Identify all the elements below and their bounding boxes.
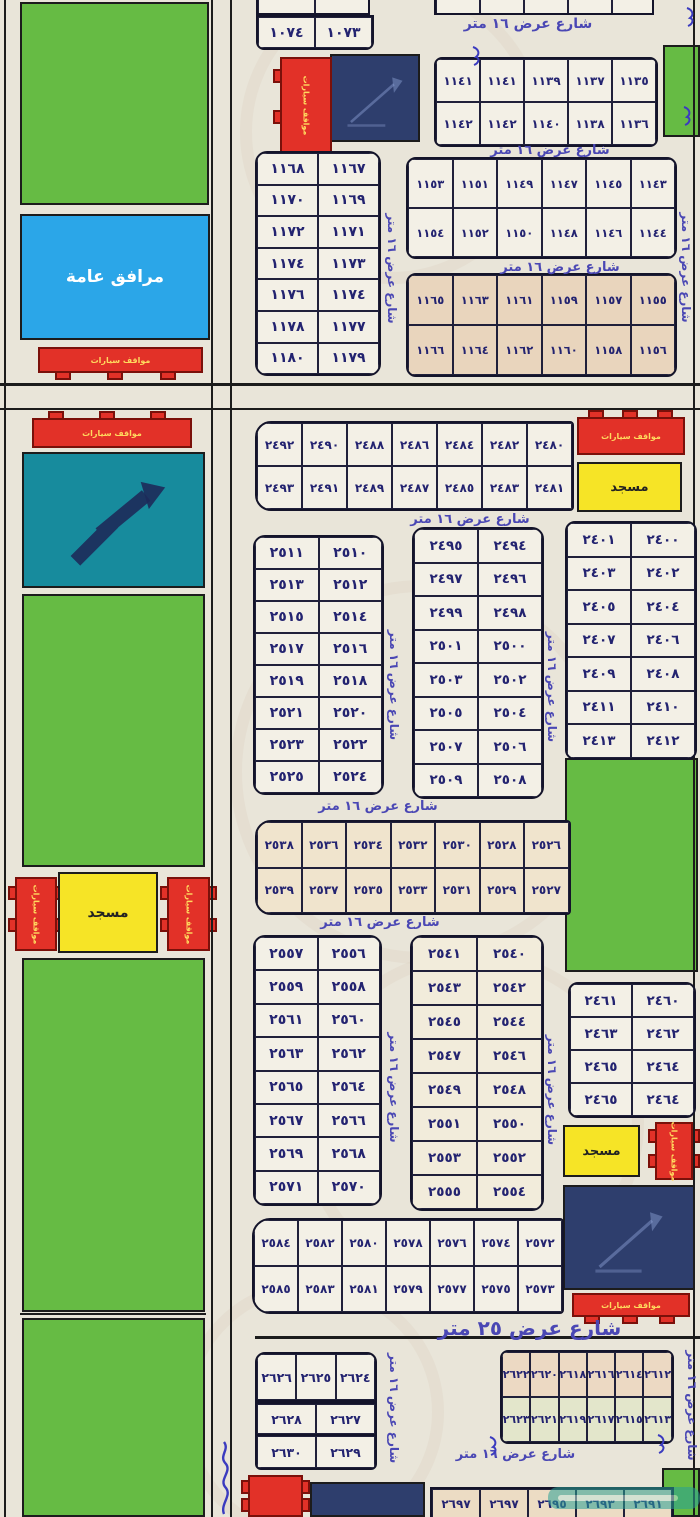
plot-cell: ٢٤٠٤ <box>631 590 695 624</box>
parking-strip: مواقف سيارات <box>32 418 192 448</box>
plot-cell: ٢٥٠٨ <box>478 764 542 798</box>
plot-cell: ٢٥٨١ <box>342 1266 386 1312</box>
plot-cell: ٢٥١٦ <box>319 633 383 665</box>
plot-cell: ٢٤٠٣ <box>567 557 631 591</box>
plot-cell: ١١٦٣ <box>453 275 498 325</box>
plot-cell: ٢٦٢٧ <box>316 1404 375 1434</box>
arrow-icon <box>565 1185 693 1290</box>
street-label-vertical: شارع عرض ١٦ متر <box>544 990 560 1190</box>
plot-cell: ١١٥٨ <box>586 325 631 375</box>
street-label: شارع عرض ١٦ متر <box>380 512 560 527</box>
plot-cell: ٢٥٣٥ <box>346 868 391 914</box>
plot-cell: ٢٥٠٠ <box>478 630 542 664</box>
plot-cell: ١١٦١ <box>497 275 542 325</box>
plot-cell: ٢٤٠٠ <box>631 523 695 557</box>
street-label: شارع عرض ١٦ متر <box>288 799 468 814</box>
park-block <box>565 758 698 972</box>
plot-cell: ١١٧٣ <box>318 248 379 280</box>
plot-cell: ٢٥٨٤ <box>254 1220 298 1266</box>
plot-cell: ٢٦٢٦ <box>257 1354 296 1400</box>
plot-table-cut <box>434 0 654 15</box>
plot-cell: ٢٤٩٠ <box>302 423 347 466</box>
plot-cell: ٢٥٤٧ <box>412 1039 477 1073</box>
plot-cell: ٢٥٧٧ <box>430 1266 474 1312</box>
plot-cell: ٢٥٤٥ <box>412 1005 477 1039</box>
pen-mark <box>470 45 484 67</box>
plot-cell: ٢٤١٢ <box>631 724 695 758</box>
plot-cell: ٢٥٣٩ <box>257 868 302 914</box>
plot-cell: ٢٥١٤ <box>319 601 383 633</box>
parking-strip-label: مواقف سيارات <box>91 356 151 365</box>
plot-cell: ٢٥٨٢ <box>298 1220 342 1266</box>
plot-cell: ٢٦٢١ <box>530 1397 558 1442</box>
plot-cell: ١١٧٤ <box>318 279 379 311</box>
plot-cell: ١١٦٦ <box>408 325 453 375</box>
plot-cell: ٢٥٥١ <box>412 1107 477 1141</box>
reserved-block <box>310 1482 425 1517</box>
street-label: شارع عرض ١٦ متر <box>423 1447 608 1462</box>
plot-cell: ١١٧٢ <box>257 216 318 248</box>
plot-cell: ٢٤٦٢ <box>632 1017 694 1050</box>
parking-strip-label: مواقف سيارات <box>32 884 41 944</box>
plot-cell: ٢٥٧٦ <box>430 1220 474 1266</box>
plot-cell: ١١٤٦ <box>586 208 631 257</box>
plot-cell: ١١٣٩ <box>524 59 568 102</box>
plot-cell: ٢٦١٧ <box>587 1397 615 1442</box>
plot-cell: ٢٦٢٢ <box>502 1352 530 1397</box>
plot-cell: ٢٤٨٣ <box>482 466 527 509</box>
plot-cell: ٢٤١٣ <box>567 724 631 758</box>
reserved-block <box>563 1185 695 1290</box>
mosque-block-label: مسجد <box>610 480 648 495</box>
plot-cell: ٢٥٠٩ <box>414 764 478 798</box>
plot-cell: ٢٤٠٢ <box>631 557 695 591</box>
plot-cell: ٢٥٨٣ <box>298 1266 342 1312</box>
plot-cell: ٢٤٦٥ <box>570 1050 632 1083</box>
street-label: شارع عرض ١٦ متر <box>290 915 470 930</box>
plot-cell: ٢٥٠٧ <box>414 730 478 764</box>
plot-cell: ١١٣٨ <box>568 102 612 145</box>
plot-table-2627: ٢٦٢٨٢٦٢٧ <box>255 1402 377 1436</box>
plot-cell: ١١٤٧ <box>542 159 587 208</box>
mosque-block: مسجد <box>563 1125 640 1177</box>
parking-strip-label: مواقف سيارات <box>302 75 311 135</box>
street-border-line <box>0 408 700 410</box>
plot-cell: ٢٤٠٨ <box>631 657 695 691</box>
plot-cell: ٢٥٣٢ <box>391 822 436 868</box>
plot-cell: ٢٥١٣ <box>255 569 319 601</box>
plot-cell: ٢٥٧٢ <box>518 1220 562 1266</box>
plot-cell: ١١٧١ <box>318 216 379 248</box>
street-label-vertical: شارع عرض ١٦ متر <box>386 1353 402 1453</box>
plot-cell: ١١٥٩ <box>542 275 587 325</box>
plot-cell: ٢٥٥٧ <box>255 937 318 970</box>
plot-cell: ٢٦٢٣ <box>502 1397 530 1442</box>
plot-cell: ٢٥٥٩ <box>255 970 318 1003</box>
plot-cell: ٢٥٧٩ <box>386 1266 430 1312</box>
plot-cell: ١١٥٦ <box>631 325 676 375</box>
plot-table-1167: ١١٦٨١١٦٧١١٧٠١١٦٩١١٧٢١١٧١١١٧٤١١٧٣١١٧٦١١٧٤… <box>255 151 381 376</box>
plot-cell: ٢٦٩٧ <box>432 1489 480 1517</box>
parking-strip-label: مواقف سيارات <box>82 429 142 438</box>
plot-cell: ٢٥٣٤ <box>346 822 391 868</box>
plot-cell: ٢٤٦٣ <box>570 1017 632 1050</box>
plot-cell: ٢٥٦٦ <box>318 1104 381 1137</box>
utility-block <box>22 452 205 588</box>
plot-cell: ٢٦٢٨ <box>257 1404 316 1434</box>
plot-cell: ٢٤٦٥ <box>570 1083 632 1116</box>
plot-cell: ٢٤٦١ <box>570 984 632 1017</box>
plot-cell: ١١٤٤ <box>631 208 676 257</box>
plot-table-cut <box>256 0 370 15</box>
public-facilities-block-label: مرافق عامة <box>66 267 164 287</box>
plot-table-2624: ٢٦٢٦٢٦٢٥٢٦٢٤ <box>255 1352 377 1402</box>
plot-cell: ٢٥٢٧ <box>524 868 569 914</box>
park-block <box>20 2 209 205</box>
plot-cell: ٢٥٢٦ <box>524 822 569 868</box>
park-block <box>22 594 205 867</box>
plot-cell: ٢٥٥٣ <box>412 1141 477 1175</box>
plot-cell: ٢٥١٥ <box>255 601 319 633</box>
plot-cell: ٢٥١٢ <box>319 569 383 601</box>
plot-cell: ٢٥٣١ <box>435 868 480 914</box>
plot-cell: ١١٧٦ <box>257 279 318 311</box>
plot-cell: ٢٤٨٦ <box>392 423 437 466</box>
plot-cell: ٢٥٢١ <box>255 697 319 729</box>
plot-cell: ٢٦١٤ <box>615 1352 643 1397</box>
plot-cell <box>480 0 524 15</box>
plot-cell: ٢٦٢٤ <box>336 1354 375 1400</box>
plot-cell: ٢٥٣٧ <box>302 868 347 914</box>
plot-cell: ٢٥٢٠ <box>319 697 383 729</box>
plot-cell: ١١٥٠ <box>497 208 542 257</box>
plot-cell: ٢٦١٢ <box>643 1352 671 1397</box>
plot-table-2510: ٢٥١١٢٥١٠٢٥١٣٢٥١٢٢٥١٥٢٥١٤٢٥١٧٢٥١٦٢٥١٩٢٥١٨… <box>253 535 384 795</box>
pen-mark <box>681 105 695 127</box>
plot-cell: ٢٥٨٠ <box>342 1220 386 1266</box>
plot-cell: ٢٥٨٥ <box>254 1266 298 1312</box>
plot-cell: ١٠٧٣ <box>315 17 372 48</box>
plot-cell: ٢٥٥٦ <box>318 937 381 970</box>
plot-cell: ١١٤٩ <box>497 159 542 208</box>
mosque-block: مسجد <box>577 462 682 512</box>
plot-cell: ٢٥٠٦ <box>478 730 542 764</box>
plot-cell: ١١٤٠ <box>524 102 568 145</box>
street-label-vertical: شارع عرض ١٦ متر <box>684 1348 700 1463</box>
plot-cell: ٢٤٨٢ <box>482 423 527 466</box>
plot-cell: ٢٤٨١ <box>527 466 572 509</box>
plot-cell: ٢٥٦٢ <box>318 1037 381 1070</box>
plot-cell: ١١٥٥ <box>631 275 676 325</box>
plot-cell: ٢٤٩٢ <box>257 423 302 466</box>
plot-cell: ٢٥٦٤ <box>318 1071 381 1104</box>
plot-cell: ٢٥٤١ <box>412 937 477 971</box>
handwritten-street-note <box>214 1440 234 1516</box>
plot-cell: ٢٥٤٨ <box>477 1073 542 1107</box>
plot-cell: ٢٥٥٨ <box>318 970 381 1003</box>
plot-cell: ٢٥٧٠ <box>318 1171 381 1204</box>
plot-cell: ٢٤٩٤ <box>478 529 542 563</box>
plot-cell: ٢٥٣٠ <box>435 822 480 868</box>
plot-cell: ٢٤٩٦ <box>478 563 542 597</box>
plot-cell <box>524 0 568 15</box>
plot-cell: ١١٣٦ <box>612 102 656 145</box>
plot-cell: ٢٤٨٨ <box>347 423 392 466</box>
mosque-block-label: مسجد <box>582 1144 620 1159</box>
plot-table-2629: ٢٦٣٠٢٦٢٩ <box>255 1434 377 1470</box>
plot-cell: ٢٤٠١ <box>567 523 631 557</box>
parking-strip <box>248 1475 303 1517</box>
plot-cell: ١١٦٧ <box>318 153 379 185</box>
plot-cell: ٢٦٩٧ <box>480 1489 528 1517</box>
plot-cell: ٢٦٢٠ <box>530 1352 558 1397</box>
plot-cell: ٢٥١٧ <box>255 633 319 665</box>
plot-cell: ٢٥٤٩ <box>412 1073 477 1107</box>
mosque-block-label: مسجد <box>87 905 128 921</box>
plot-cell: ٢٥١٨ <box>319 665 383 697</box>
plot-cell: ٢٥٢٢ <box>319 729 383 761</box>
parking-strip: مواقف سيارات <box>572 1293 690 1317</box>
plot-cell: ٢٤١٠ <box>631 691 695 725</box>
plot-cell: ٢٥٥٠ <box>477 1107 542 1141</box>
plot-map-canvas: مرافق عامةمسجدمسجدمسجدمواقف سياراتمواقف … <box>0 0 700 1517</box>
plot-cell: ٢٥٠٣ <box>414 663 478 697</box>
parking-strip-label: مواقف سيارات <box>184 884 193 944</box>
plot-cell: ١١٦٤ <box>453 325 498 375</box>
plot-cell: ٢٤١١ <box>567 691 631 725</box>
plot-cell: ١١٥١ <box>453 159 498 208</box>
parking-strip: مواقف سيارات <box>280 57 332 153</box>
plot-cell: ١١٤٨ <box>542 208 587 257</box>
mosque-block: مسجد <box>58 872 158 953</box>
plot-cell: ٢٦٢٥ <box>296 1354 335 1400</box>
parking-strip: مواقف سيارات <box>577 417 685 455</box>
plot-cell: ٢٦١٨ <box>559 1352 587 1397</box>
plot-cell: ٢٤٨٠ <box>527 423 572 466</box>
street-label: شارع عرض ٢٥ متر <box>407 1316 652 1340</box>
parking-strip: مواقف سيارات <box>15 877 57 951</box>
plot-table-2460: ٢٤٦١٢٤٦٠٢٤٦٣٢٤٦٢٢٤٦٥٢٤٦٤٢٤٦٥٢٤٦٤ <box>568 982 696 1118</box>
plot-cell: ٢٤٩١ <box>302 466 347 509</box>
street-label: شارع عرض ١٦ متر <box>450 143 650 158</box>
plot-cell: ٢٥١٩ <box>255 665 319 697</box>
plot-cell: ٢٤٦٠ <box>632 984 694 1017</box>
parking-strip: مواقف سيارات <box>167 877 210 951</box>
plot-cell: ٢٥٧٥ <box>474 1266 518 1312</box>
plot-cell: ٢٤٦٤ <box>632 1050 694 1083</box>
plot-cell: ٢٤٨٥ <box>437 466 482 509</box>
plot-cell: ١١٥٤ <box>408 208 453 257</box>
park-block <box>22 1318 205 1517</box>
plot-cell: ٢٥٠١ <box>414 630 478 664</box>
plot-cell: ٢٤٩٣ <box>257 466 302 509</box>
plot-cell: ٢٤٩٩ <box>414 596 478 630</box>
plot-cell <box>258 0 315 15</box>
plot-cell: ٢٥٠٥ <box>414 697 478 731</box>
plot-cell: ٢٤٨٧ <box>392 466 437 509</box>
plot-table-2480: ٢٤٩٢٢٤٩٠٢٤٨٨٢٤٨٦٢٤٨٤٢٤٨٢٢٤٨٠٢٤٩٣٢٤٩١٢٤٨٩… <box>255 421 574 511</box>
plot-cell: ٢٥٦١ <box>255 1004 318 1037</box>
plot-cell: ٢٥٢٣ <box>255 729 319 761</box>
plot-cell: ٢٥٧٣ <box>518 1266 562 1312</box>
bolt-icon <box>24 452 203 588</box>
plot-cell: ٢٤٦٤ <box>632 1083 694 1116</box>
plot-cell: ٢٤٠٩ <box>567 657 631 691</box>
street-border-line <box>4 0 6 1517</box>
plot-cell: ٢٥٤٢ <box>477 971 542 1005</box>
plot-cell: ١١٤١ <box>480 59 524 102</box>
watermark-logo <box>548 1487 700 1509</box>
plot-cell: ١١٥٧ <box>586 275 631 325</box>
plot-cell: ٢٥٦٩ <box>255 1137 318 1170</box>
plot-cell: ١١٦٢ <box>497 325 542 375</box>
street-border-line <box>0 383 700 386</box>
plot-table-1143: ١١٥٣١١٥١١١٤٩١١٤٧١١٤٥١١٤٣١١٥٤١١٥٢١١٥٠١١٤٨… <box>406 157 677 259</box>
arrow-icon <box>332 54 418 142</box>
plot-table-1155: ١١٦٥١١٦٣١١٦١١١٥٩١١٥٧١١٥٥١١٦٦١١٦٤١١٦٢١١٦٠… <box>406 273 677 377</box>
plot-cell: ٢٥٠٢ <box>478 663 542 697</box>
plot-cell: ٢٥٧١ <box>255 1171 318 1204</box>
pen-mark <box>487 1435 501 1457</box>
plot-table-2572: ٢٥٨٤٢٥٨٢٢٥٨٠٢٥٧٨٢٥٧٦٢٥٧٤٢٥٧٢٢٥٨٥٢٥٨٣٢٥٨١… <box>252 1218 564 1314</box>
plot-cell: ٢٥٣٣ <box>391 868 436 914</box>
reserved-block <box>330 54 420 142</box>
plot-table-2400: ٢٤٠١٢٤٠٠٢٤٠٣٢٤٠٢٢٤٠٥٢٤٠٤٢٤٠٧٢٤٠٦٢٤٠٩٢٤٠٨… <box>565 521 697 760</box>
plot-cell: ٢٤٩٥ <box>414 529 478 563</box>
street-border-line <box>230 0 232 1517</box>
plot-cell: ١١٦٨ <box>257 153 318 185</box>
plot-cell <box>436 0 480 15</box>
plot-table-2556: ٢٥٥٧٢٥٥٦٢٥٥٩٢٥٥٨٢٥٦١٢٥٦٠٢٥٦٣٢٥٦٢٢٥٦٥٢٥٦٤… <box>253 935 382 1206</box>
plot-table-2612: ٢٦٢٢٢٦٢٠٢٦١٨٢٦١٦٢٦١٤٢٦١٢٢٦٢٣٢٦٢١٢٦١٩٢٦١٧… <box>500 1350 674 1444</box>
plot-table-2526: ٢٥٣٨٢٥٣٦٢٥٣٤٢٥٣٢٢٥٣٠٢٥٢٨٢٥٢٦٢٥٣٩٢٥٣٧٢٥٣٥… <box>255 820 571 915</box>
street-label: شارع عرض ١٦ متر <box>433 16 623 32</box>
plot-cell: ١١٧٠ <box>257 185 318 217</box>
street-label-vertical: شارع عرض ١٦ متر <box>544 587 560 787</box>
plot-cell <box>612 0 654 15</box>
street-label-vertical: شارع عرض ١٦ متر <box>384 172 400 365</box>
plot-cell: ٢٥٤٦ <box>477 1039 542 1073</box>
street-border-line <box>211 0 213 1517</box>
plot-cell: ٢٥٦٥ <box>255 1071 318 1104</box>
pen-mark <box>684 6 698 28</box>
plot-cell: ٢٥٢٩ <box>480 868 525 914</box>
plot-cell: ٢٤٨٤ <box>437 423 482 466</box>
plot-cell: ١١٧٩ <box>318 343 379 375</box>
public-facilities-block: مرافق عامة <box>20 214 210 340</box>
plot-cell: ٢٥٦٧ <box>255 1104 318 1137</box>
plot-cell: ٢٦٣٠ <box>257 1436 316 1468</box>
plot-cell: ٢٥٦٨ <box>318 1137 381 1170</box>
plot-cell: ٢٥٧٨ <box>386 1220 430 1266</box>
plot-cell: ٢٥٥٤ <box>477 1175 542 1209</box>
plot-cell: ١١٤٥ <box>586 159 631 208</box>
plot-cell: ١١٧٨ <box>257 311 318 343</box>
plot-cell <box>315 0 370 15</box>
plot-cell: ٢٥٣٨ <box>257 822 302 868</box>
pen-mark <box>655 1433 669 1455</box>
plot-cell: ٢٦١٦ <box>587 1352 615 1397</box>
plot-cell: ٢٤٠٥ <box>567 590 631 624</box>
plot-cell: ١١٣٧ <box>568 59 612 102</box>
plot-cell: ٢٥٢٨ <box>480 822 525 868</box>
park-block <box>22 958 205 1312</box>
plot-table-2540: ٢٥٤١٢٥٤٠٢٥٤٣٢٥٤٢٢٥٤٥٢٥٤٤٢٥٤٧٢٥٤٦٢٥٤٩٢٥٤٨… <box>410 935 544 1211</box>
plot-cell: ١١٨٠ <box>257 343 318 375</box>
street-label-vertical: شارع عرض ١٦ متر <box>386 590 402 780</box>
plot-cell: ٢٥٤٣ <box>412 971 477 1005</box>
plot-cell: ٢٤٩٨ <box>478 596 542 630</box>
plot-table-2494: ٢٤٩٥٢٤٩٤٢٤٩٧٢٤٩٦٢٤٩٩٢٤٩٨٢٥٠١٢٥٠٠٢٥٠٣٢٥٠٢… <box>412 527 544 799</box>
plot-cell: ١١٦٠ <box>542 325 587 375</box>
plot-cell: ٢٥٠٤ <box>478 697 542 731</box>
parking-strip-label: مواقف سيارات <box>601 1301 661 1310</box>
plot-cell: ١١٣٥ <box>612 59 656 102</box>
plot-cell: ٢٤٠٦ <box>631 624 695 658</box>
parking-strip: مواقف سيارات <box>38 347 203 373</box>
parking-strip: مواقف سيارات <box>655 1122 693 1180</box>
plot-cell: ١١٤٣ <box>631 159 676 208</box>
plot-cell: ٢٤٩٧ <box>414 563 478 597</box>
plot-table-1135: ١١٤١١١٤١١١٣٩١١٣٧١١٣٥١١٤٢١١٤٢١١٤٠١١٣٨١١٣٦ <box>434 57 658 147</box>
plot-cell: ٢٥١١ <box>255 537 319 569</box>
plot-cell: ١١٥٣ <box>408 159 453 208</box>
plot-cell: ٢٥٢٥ <box>255 761 319 793</box>
plot-cell: ١٠٧٤ <box>258 17 315 48</box>
plot-cell: ٢٥٥٢ <box>477 1141 542 1175</box>
plot-cell: ١١٧٧ <box>318 311 379 343</box>
plot-cell: ٢٦١٥ <box>615 1397 643 1442</box>
plot-cell: ٢٥٣٦ <box>302 822 347 868</box>
plot-cell: ١١٤٢ <box>480 102 524 145</box>
plot-cell: ٢٥١٠ <box>319 537 383 569</box>
watermark-logo-stripe <box>558 1495 678 1501</box>
plot-cell: ١١٦٩ <box>318 185 379 217</box>
parking-strip-label: مواقف سيارات <box>601 432 661 441</box>
plot-cell: ٢٥٧٤ <box>474 1220 518 1266</box>
street-border-line <box>20 1313 206 1315</box>
plot-cell: ١١٤٢ <box>436 102 480 145</box>
street-label: شارع عرض ١٦ متر <box>470 260 650 275</box>
plot-cell: ٢٥٢٤ <box>319 761 383 793</box>
plot-cell: ٢٤٠٧ <box>567 624 631 658</box>
plot-cell: ٢٥٦٠ <box>318 1004 381 1037</box>
plot-cell: ١١٦٥ <box>408 275 453 325</box>
plot-cell: ٢٥٤٠ <box>477 937 542 971</box>
plot-cell: ٢٦٢٩ <box>316 1436 375 1468</box>
plot-cell: ١١٧٤ <box>257 248 318 280</box>
plot-cell: ٢٦١٩ <box>559 1397 587 1442</box>
plot-table-1073: ١٠٧٤١٠٧٣ <box>256 15 374 50</box>
street-label-vertical: شارع عرض ١٦ متر <box>386 990 402 1185</box>
plot-cell: ٢٥٦٣ <box>255 1037 318 1070</box>
plot-cell: ٢٥٤٤ <box>477 1005 542 1039</box>
plot-cell: ١١٥٢ <box>453 208 498 257</box>
plot-cell: ٢٤٨٩ <box>347 466 392 509</box>
street-label-vertical: شارع عرض ١٦ متر <box>678 170 694 365</box>
plot-cell: ٢٥٥٥ <box>412 1175 477 1209</box>
parking-strip-label: مواقف سيارات <box>670 1121 679 1181</box>
plot-cell <box>568 0 612 15</box>
